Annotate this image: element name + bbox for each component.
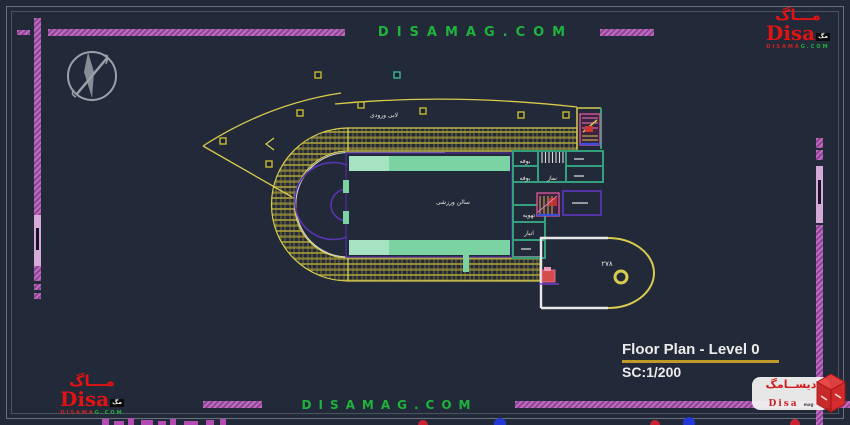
logo-name-text: Disa [766, 23, 815, 43]
stair-room [577, 108, 601, 149]
logo-domain-left: DISAMA [60, 410, 94, 416]
title-underline [622, 360, 779, 363]
logo-domain-text: DISAMAG.COM [44, 411, 140, 416]
watermark-bottom: DISAMAG.COM [277, 398, 502, 412]
brand-logo-bottom-left: مـــاگ Disaمگ DISAMAG.COM [44, 374, 140, 416]
logo-suffix-chip: مگ [110, 399, 124, 407]
logo-suffix-chip: مگ [816, 33, 830, 41]
stair-symbol [537, 193, 559, 216]
watermark-top: DISAMAG.COM [358, 25, 593, 40]
label-lobby: لابی ورودی [370, 112, 398, 119]
label-room: بوفه [520, 175, 531, 182]
badge-name-text: Disa [769, 399, 799, 409]
logo-domain-left: DISAMA [766, 44, 800, 50]
logo-domain-right: G.COM [95, 410, 124, 416]
label-room: بوفه [520, 158, 531, 165]
label-room: نماز [546, 175, 557, 182]
badge-cube-icon [812, 370, 850, 418]
clipped-text-fragments [102, 417, 800, 425]
label-hall: سالن ورزشی [436, 199, 470, 206]
logo-name-text: Disa [60, 389, 109, 409]
label-area-number: ۲۷۸ [601, 260, 613, 268]
logo-domain-text: DISAMAG.COM [750, 45, 846, 50]
cad-floor-plan-sheet: لابی ورودی سالن ورزشی بوفه بوفه نماز تهو… [0, 0, 850, 425]
brand-logo-top-right: مـــاگ Disaمگ DISAMAG.COM [750, 8, 846, 50]
north-arrow-icon [68, 52, 116, 100]
round-room [539, 238, 654, 308]
label-room: انبار [523, 230, 534, 237]
logo-domain-right: G.COM [801, 44, 830, 50]
drawing-title: Floor Plan - Level 0 [622, 341, 779, 358]
label-room: تهویه [523, 212, 536, 219]
title-block: Floor Plan - Level 0 SC:1/200 [622, 341, 779, 380]
